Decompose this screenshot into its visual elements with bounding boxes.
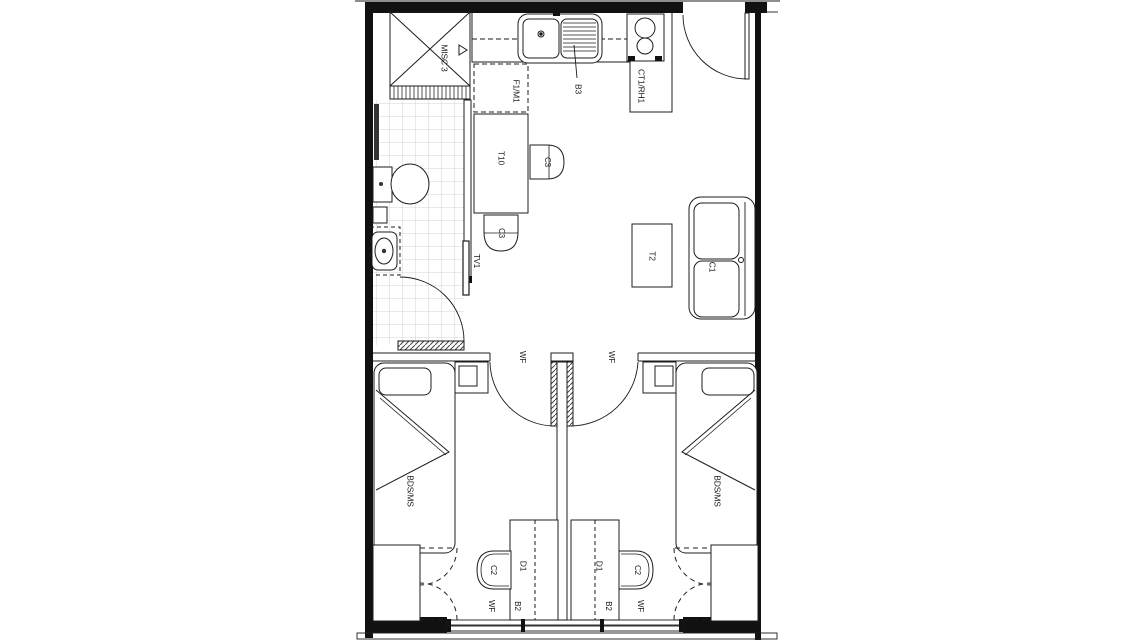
sofa-code-label: C1 — [708, 262, 717, 272]
wardrobe-left — [373, 545, 457, 621]
floor-left-finish-label: WF — [487, 600, 495, 612]
dining-chair-top-code-label: C3 — [543, 157, 551, 167]
left-bedroom-door-leaf — [551, 362, 557, 426]
entry-door-swing — [683, 15, 747, 79]
right-door-finish-label: WF — [607, 351, 615, 363]
sink-code-label: B3 — [574, 84, 583, 94]
toilet-roll-shelf — [373, 207, 387, 223]
coffee-table-code-label: T2 — [648, 251, 657, 261]
bed-left-code-label: BDS/MS — [406, 475, 415, 506]
bedroom-right — [571, 362, 758, 621]
bedside-table-left — [455, 362, 488, 393]
entry-door — [683, 13, 749, 79]
bottom-window — [447, 619, 683, 632]
cooktop-code-label: CT1/RH1 — [637, 69, 646, 103]
desk-chair-left-code-label: C2 — [489, 565, 497, 575]
desk-right-code-label: D1 — [595, 561, 604, 571]
bathroom-door-leaf — [398, 341, 464, 350]
bedroom-left — [373, 362, 558, 621]
pillow — [702, 368, 754, 395]
shaft-code-label: MISC 3 — [440, 44, 449, 71]
toilet — [373, 164, 429, 204]
bedside-table-right — [643, 362, 676, 393]
bed-left — [374, 363, 455, 553]
bed-right-code-label: BDS/MS — [713, 475, 722, 506]
desk-chair-right-code-label: C2 — [633, 565, 641, 575]
floor-right-finish-label: WF — [636, 600, 644, 612]
living-dining — [463, 114, 755, 319]
services-shaft — [390, 12, 470, 99]
left-door-finish-label: WF — [518, 351, 526, 363]
entry-door-leaf — [745, 13, 749, 79]
sofa — [689, 197, 755, 319]
basin — [370, 227, 400, 275]
wardrobe-right — [674, 545, 758, 621]
window-left-code-label: B2 — [513, 601, 521, 610]
left-bedroom-door-swing — [490, 362, 554, 426]
floorplan-linework — [0, 0, 1136, 640]
bed-right — [676, 363, 757, 553]
desk-left-code-label: D1 — [519, 561, 528, 571]
direction-marker — [459, 45, 467, 55]
kitchen-sink — [518, 12, 602, 63]
mirror — [374, 104, 379, 160]
fridge-microwave-code-label: F1/M1 — [512, 79, 521, 102]
right-bedroom-door-swing — [570, 362, 638, 426]
tv-code-label: TV1 — [472, 254, 480, 268]
dining-chair-bottom-code-label: C3 — [497, 228, 505, 238]
cooktop — [627, 14, 664, 61]
right-bedroom-door-leaf — [567, 362, 573, 426]
bathroom — [370, 100, 472, 350]
window-right-code-label: B2 — [604, 601, 612, 610]
tv-unit — [463, 241, 469, 295]
dining-table-code-label: T10 — [497, 151, 506, 165]
floorplan-canvas: MISC 3 F1/M1 B3 CT1/RH1 T10 C3 C3 TV1 T2… — [0, 0, 1136, 640]
pillow — [379, 368, 431, 395]
